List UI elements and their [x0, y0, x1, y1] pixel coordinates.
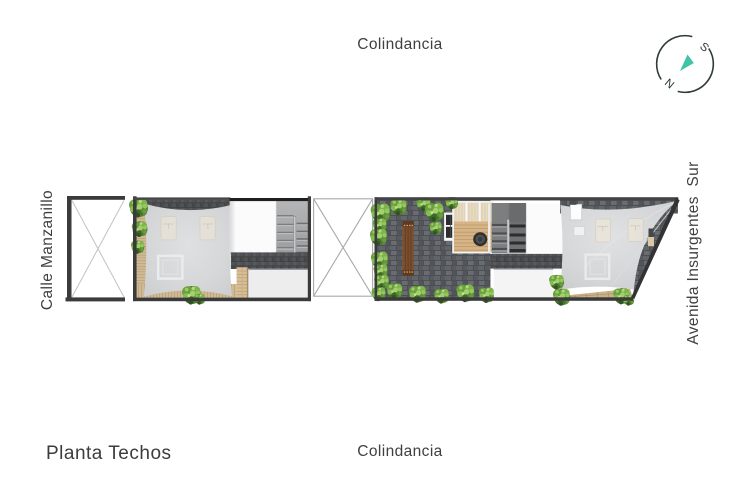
svg-text:Calle Manzanillo: Calle Manzanillo — [39, 190, 56, 310]
svg-text:Colindancia: Colindancia — [357, 36, 442, 53]
svg-text:Planta Techos: Planta Techos — [46, 443, 172, 464]
svg-text:Avenida Insurgentes Sur: Avenida Insurgentes Sur — [685, 161, 702, 344]
svg-text:Colindancia: Colindancia — [357, 443, 442, 460]
